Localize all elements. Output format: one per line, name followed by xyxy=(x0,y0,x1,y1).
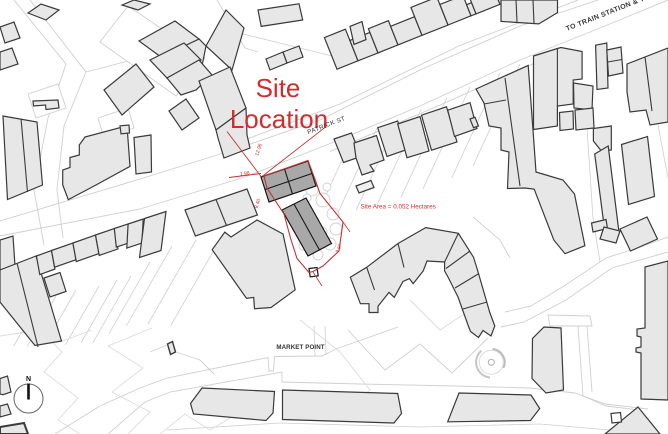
svg-text:Site: Site xyxy=(256,73,301,103)
svg-text:Site Area = 0.052 Hectares: Site Area = 0.052 Hectares xyxy=(361,204,436,211)
svg-text:N: N xyxy=(26,376,31,383)
svg-text:MARKET POINT: MARKET POINT xyxy=(276,344,324,351)
